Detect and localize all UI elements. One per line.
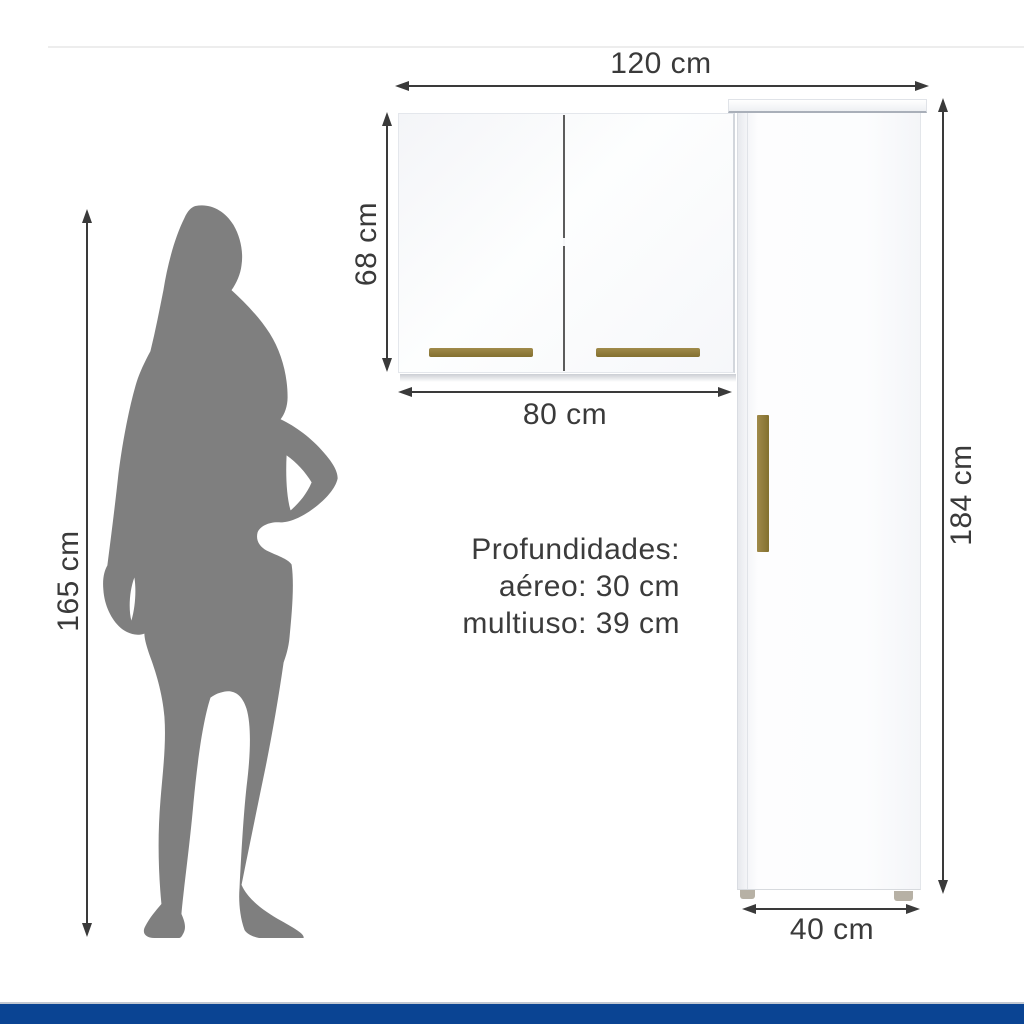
top-divider-line (48, 46, 1024, 48)
tall-cabinet-top-panel (728, 99, 927, 113)
wall-cabinet-divider-gap (563, 238, 565, 246)
multiuso-width-label: 40 cm (732, 913, 932, 947)
tall-cabinet-body (737, 113, 921, 890)
multiuso-height-arrow (935, 97, 951, 895)
wall-cabinet-shadow (400, 374, 736, 382)
footer-accent-bar (0, 1002, 1024, 1024)
person-height-arrow (79, 208, 95, 938)
tall-cabinet-handle (757, 415, 769, 552)
wall-cabinet-left-handle (429, 348, 533, 357)
total-width-arrow (394, 78, 930, 94)
depths-aereo: aéreo: 30 cm (340, 568, 680, 605)
wall-cabinet-right-handle (596, 348, 700, 357)
aereo-width-label: 80 cm (465, 398, 665, 432)
total-width-label: 120 cm (561, 47, 761, 81)
depths-note: Profundidades: aéreo: 30 cm multiuso: 39… (340, 531, 680, 642)
tall-cabinet-right-foot (894, 891, 913, 901)
depths-title: Profundidades: (340, 531, 680, 568)
woman-silhouette-icon (98, 203, 343, 938)
multiuso-width-arrow (741, 901, 921, 917)
depths-multiuso: multiuso: 39 cm (340, 605, 680, 642)
aereo-width-arrow (397, 384, 733, 400)
aereo-height-arrow (379, 111, 395, 373)
tall-cabinet-left-foot (740, 889, 755, 899)
wall-cabinet (398, 113, 735, 373)
tall-cabinet-door-seam (747, 113, 748, 889)
